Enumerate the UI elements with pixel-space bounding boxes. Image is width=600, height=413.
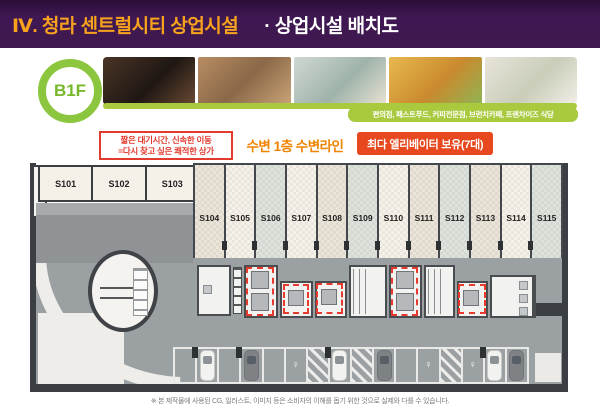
wall-bottom <box>30 384 568 392</box>
unit-S109: S109 <box>346 163 377 258</box>
photo-fried-chicken <box>389 57 481 105</box>
ramp-core <box>133 268 148 316</box>
unit-S114: S114 <box>500 163 531 258</box>
photo-caption: 편의점, 패스트푸드, 커피전문점, 브런치카페, 프랜차이즈 식당 <box>348 107 578 122</box>
toilet-fixture <box>519 307 528 316</box>
unit-row-top: S101 S102 S103 <box>38 165 200 202</box>
elevator-highlight <box>283 284 309 314</box>
floor-plan: S101 S102 S103 S104 S105 S106 S107 S108 … <box>30 163 568 392</box>
unit-label: S104 <box>195 213 224 223</box>
unit-S111: S111 <box>408 163 439 258</box>
unit-label: S115 <box>532 213 561 223</box>
stair-treads <box>428 269 442 314</box>
unit-label: S107 <box>287 213 316 223</box>
wheel-stop <box>480 347 486 358</box>
toilet-fixture <box>519 281 528 290</box>
car-icon <box>510 351 523 380</box>
photo-restaurant-dining <box>485 57 577 105</box>
stair-room <box>424 265 455 318</box>
unit-S104: S104 <box>193 163 224 258</box>
restroom <box>490 275 536 318</box>
unit-S107: S107 <box>285 163 316 258</box>
circular-ramp <box>88 250 158 332</box>
unit-label: S108 <box>318 213 347 223</box>
unit-label: S109 <box>348 213 377 223</box>
car-icon <box>488 351 501 380</box>
parking-stall <box>372 349 394 382</box>
elevator-highlight <box>316 283 343 314</box>
unit-label: S111 <box>410 213 439 223</box>
elevator-callout: 최다 엘리베이터 보유(7대) <box>357 132 493 155</box>
unit-label: S114 <box>502 213 531 223</box>
unit-S101: S101 <box>38 165 91 202</box>
unit-S110: S110 <box>377 163 408 258</box>
service-room <box>197 265 231 316</box>
unit-S113: S113 <box>469 163 500 258</box>
unit-S108: S108 <box>316 163 347 258</box>
parking-stall <box>195 349 217 382</box>
unit-label: S112 <box>440 213 469 223</box>
unit-label: S110 <box>379 213 408 223</box>
elevator-highlight <box>391 267 418 316</box>
ladder-shaft <box>233 267 242 314</box>
unit-label: S103 <box>162 179 183 189</box>
parking-row: ♀ ♀ ♀ <box>173 347 529 384</box>
unit-S106: S106 <box>254 163 285 258</box>
benefit-callout: 짧은 대기시간, 신속한 이동 =다시 찾고 싶은 쾌적한 상가 <box>99 131 233 160</box>
stair-room <box>349 265 387 318</box>
waterside-callout: 수변 1층 수변라인 <box>241 135 349 155</box>
car-icon <box>201 351 214 380</box>
wall-segment <box>536 303 562 316</box>
slide-page: Ⅳ. 청라 센트럴시티 상업시설 · 상업시설 배치도 B1F 편의점, 패스트… <box>0 0 600 413</box>
parking-stall-hatched <box>439 349 461 382</box>
floor-badge-label: B1F <box>54 81 86 101</box>
parking-stall-ev: ♀ <box>284 349 306 382</box>
unit-label: S113 <box>471 213 500 223</box>
unit-S103: S103 <box>145 165 200 202</box>
unit-S102: S102 <box>91 165 144 202</box>
ev-charging-icon: ♀ <box>286 349 306 382</box>
benefit-line1: 짧은 대기시간, 신속한 이동 <box>121 135 212 146</box>
unit-label: S102 <box>108 179 129 189</box>
photo-strip <box>103 57 577 105</box>
header-bar: Ⅳ. 청라 센트럴시티 상업시설 · 상업시설 배치도 <box>0 0 600 48</box>
unit-S115: S115 <box>530 163 563 258</box>
fixture <box>203 285 212 294</box>
wheel-stop <box>192 347 198 358</box>
elevator-highlight <box>458 284 486 314</box>
page-title: Ⅳ. 청라 센트럴시티 상업시설 <box>12 11 238 38</box>
car-icon <box>245 351 258 380</box>
photo-cafe-espresso-machine <box>103 57 195 105</box>
wheel-stop <box>325 347 331 358</box>
floor-badge: B1F <box>38 59 102 123</box>
parking-stall-hatched <box>350 349 372 382</box>
parking-stall <box>328 349 350 382</box>
toilet-fixture <box>519 294 528 303</box>
footer-disclaimer: ※ 본 제작물에 사용된 CG, 일러스트, 이미지 등은 소비자의 이해를 돕… <box>0 396 600 406</box>
ev-charging-icon: ♀ <box>418 349 438 382</box>
unit-S112: S112 <box>438 163 469 258</box>
photo-convenience-store <box>294 57 386 105</box>
wheel-stop <box>236 347 242 358</box>
parking-stall <box>239 349 261 382</box>
photo-people-at-cafe <box>198 57 290 105</box>
parking-stall-ev: ♀ <box>416 349 438 382</box>
unit-label: S101 <box>55 179 76 189</box>
car-icon <box>333 351 346 380</box>
page-subtitle: · 상업시설 배치도 <box>264 11 398 38</box>
unit-label: S106 <box>256 213 285 223</box>
car-icon <box>378 351 391 380</box>
parking-stall <box>262 349 284 382</box>
parking-stall <box>394 349 416 382</box>
unit-label: S105 <box>226 213 255 223</box>
benefit-line2: =다시 찾고 싶은 쾌적한 상가 <box>118 146 214 157</box>
stair-treads <box>353 269 369 314</box>
parking-stall <box>483 349 505 382</box>
parking-stall <box>505 349 527 382</box>
unit-row-main: S104 S105 S106 S107 S108 S109 S110 S111 … <box>193 163 563 258</box>
elevator-highlight <box>246 267 274 316</box>
unit-S105: S105 <box>224 163 255 258</box>
walkway-right <box>535 353 561 382</box>
